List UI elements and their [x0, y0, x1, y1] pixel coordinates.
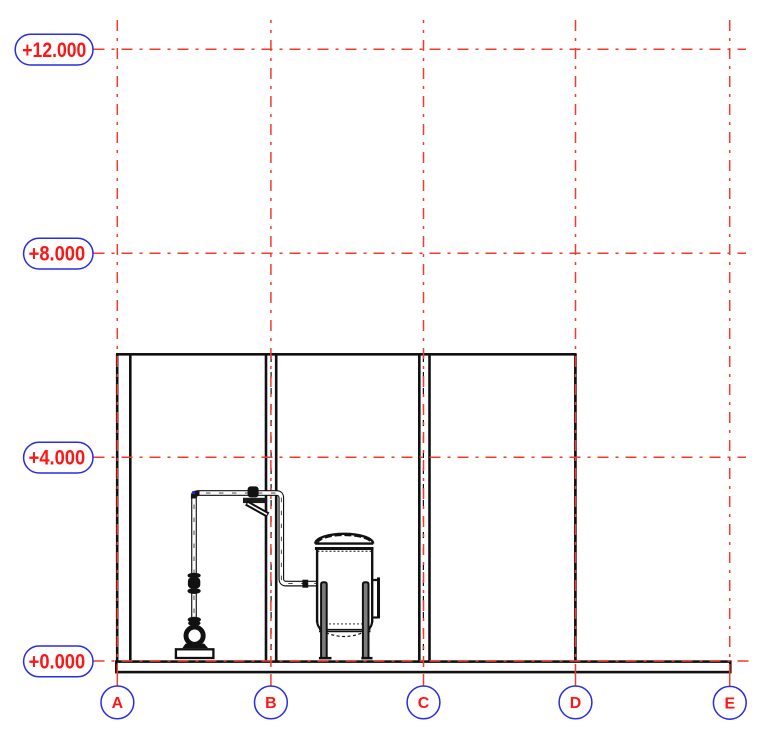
svg-text:+4.000: +4.000	[29, 447, 86, 470]
svg-text:C: C	[418, 695, 430, 712]
svg-text:D: D	[570, 695, 581, 712]
svg-text:+8.000: +8.000	[29, 243, 86, 266]
svg-text:+0.000: +0.000	[29, 651, 86, 674]
svg-text:B: B	[265, 695, 276, 712]
svg-text:+12.000: +12.000	[22, 39, 86, 62]
svg-text:A: A	[112, 695, 124, 712]
svg-text:E: E	[724, 695, 735, 712]
